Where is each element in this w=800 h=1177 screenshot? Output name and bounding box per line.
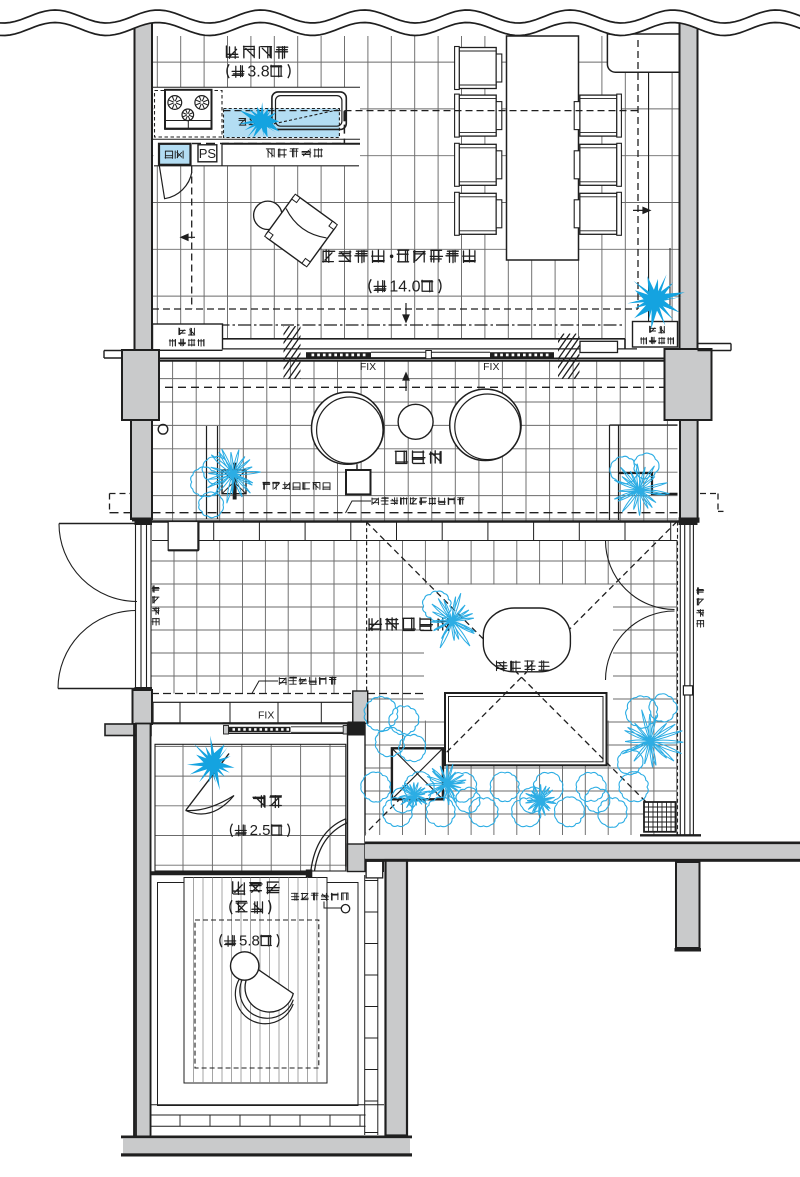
svg-text:14.0: 14.0 xyxy=(389,278,420,295)
svg-text:FIX: FIX xyxy=(258,710,274,722)
svg-text:5.8: 5.8 xyxy=(239,933,260,950)
svg-text:PS: PS xyxy=(199,146,217,161)
svg-text:3.8: 3.8 xyxy=(247,63,269,80)
svg-text:2.5: 2.5 xyxy=(250,822,271,839)
svg-text:FIX: FIX xyxy=(483,361,499,373)
svg-text:FIX: FIX xyxy=(360,361,376,373)
